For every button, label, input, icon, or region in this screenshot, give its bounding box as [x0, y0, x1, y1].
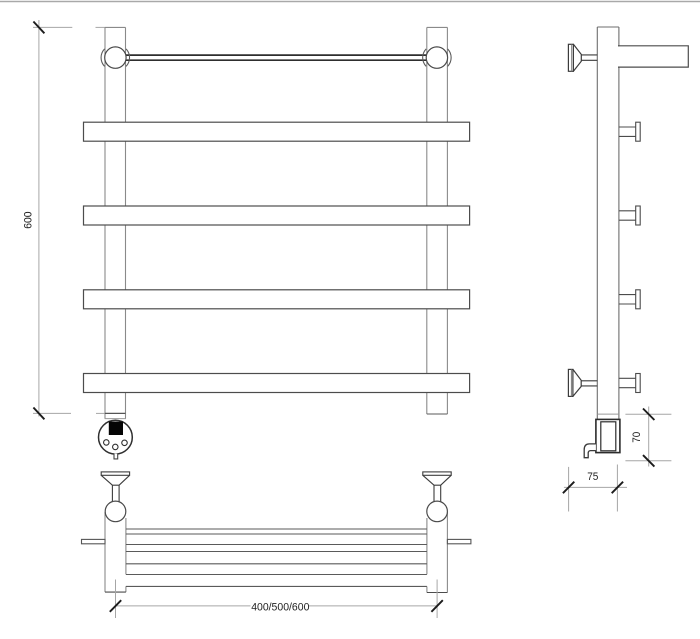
- svg-text:75: 75: [587, 471, 598, 483]
- svg-text:600: 600: [22, 212, 34, 229]
- svg-text:70: 70: [631, 432, 643, 443]
- svg-text:400/500/600: 400/500/600: [251, 601, 309, 613]
